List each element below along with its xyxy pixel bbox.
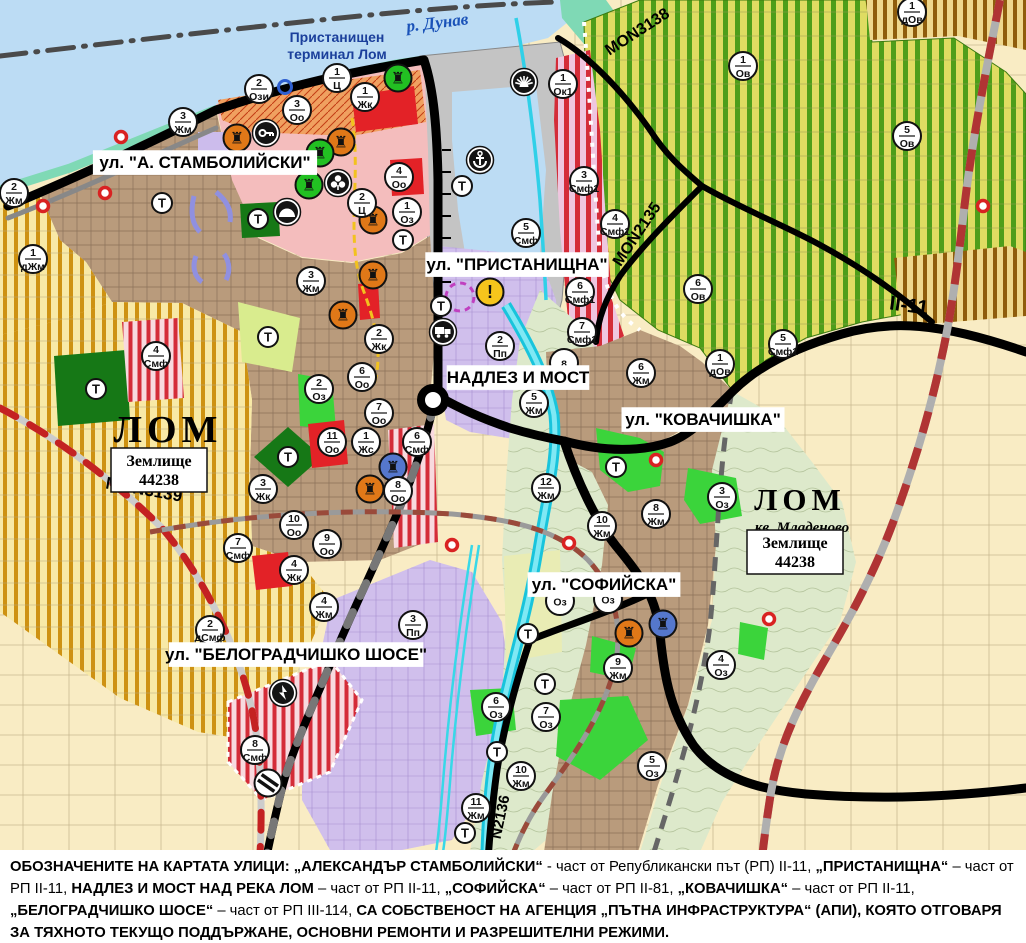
svg-text:Жк: Жк xyxy=(255,491,271,503)
svg-text:7: 7 xyxy=(376,401,382,413)
zone-marker: 1дОв xyxy=(706,350,734,378)
svg-text:♜: ♜ xyxy=(622,624,636,643)
svg-text:Т: Т xyxy=(158,196,166,211)
zone-marker: 6Оз xyxy=(482,693,510,721)
mountain-icon xyxy=(274,199,301,226)
zone-marker: 9Жм xyxy=(604,654,632,682)
svg-text:Оо: Оо xyxy=(372,415,387,427)
street-label: ул. "БЕЛОГРАДЧИШКО ШОСЕ" xyxy=(165,642,427,667)
zone-marker: 4Оз xyxy=(707,651,735,679)
svg-text:2: 2 xyxy=(316,377,322,389)
svg-text:♜: ♜ xyxy=(386,458,400,477)
red-dot-marker xyxy=(564,538,575,549)
svg-text:Землище: Землище xyxy=(762,535,827,552)
street-label: НАДЛЕЗ И МОСТ xyxy=(447,365,590,390)
roundabout xyxy=(421,388,445,412)
zone-marker: 9Оо xyxy=(313,530,341,558)
green-zone-oz-7 xyxy=(738,622,768,660)
zone-marker: 2Ц xyxy=(348,189,376,217)
culture-icon: ♜ xyxy=(296,172,323,199)
svg-text:10: 10 xyxy=(288,513,300,525)
svg-text:Жм: Жм xyxy=(511,778,529,790)
svg-text:1: 1 xyxy=(404,200,410,212)
svg-text:Пп: Пп xyxy=(406,627,420,639)
culture-icon: ♜ xyxy=(330,302,357,329)
svg-text:Жм: Жм xyxy=(592,528,610,540)
culture-icon: ♜ xyxy=(650,611,677,638)
svg-text:5: 5 xyxy=(780,332,786,344)
railcross-icon xyxy=(255,770,282,797)
zone-marker: 2Жм xyxy=(0,179,28,207)
footer-street-name: НАДЛЕЗ И МОСТ НАД РЕКА ЛОМ xyxy=(71,881,314,897)
svg-text:1: 1 xyxy=(334,66,340,78)
zone-marker: 1Жс xyxy=(352,428,380,456)
svg-text:1: 1 xyxy=(363,430,369,442)
culture-icon: ♜ xyxy=(224,125,251,152)
svg-text:6: 6 xyxy=(577,280,583,292)
zone-marker: 7Смф xyxy=(224,534,252,562)
zone-marker: 5Смф1 xyxy=(768,330,798,358)
svg-text:ЛОМ: ЛОМ xyxy=(114,409,223,451)
transformer-marker: Т xyxy=(455,823,475,843)
svg-text:♜: ♜ xyxy=(391,69,405,88)
zone-marker: 10Жм xyxy=(507,762,535,790)
zoning-map-screenshot: ♜♜♜♜♜♜♜♜♜♜♜♜! 2Ози1Ц3Оо1Жк3Жм2Жм1дЖм4Оо2… xyxy=(0,0,1026,943)
zone-marker: 3Пп xyxy=(399,611,427,639)
zone-marker: 2Пп xyxy=(486,332,514,360)
svg-text:дОв: дОв xyxy=(709,366,731,378)
svg-text:9: 9 xyxy=(615,656,621,668)
footer-street-name: „СОФИЙСКА“ xyxy=(445,881,546,897)
svg-text:1: 1 xyxy=(909,0,915,12)
svg-text:6: 6 xyxy=(414,430,420,442)
svg-text:♜: ♜ xyxy=(336,306,350,325)
svg-text:4: 4 xyxy=(153,344,159,356)
svg-text:3: 3 xyxy=(410,613,416,625)
svg-text:ул. "ПРИСТАНИЩНА": ул. "ПРИСТАНИЩНА" xyxy=(426,255,607,274)
footer-text: – част от РП III-114, xyxy=(213,903,356,919)
zone-marker: 7Оз xyxy=(532,703,560,731)
sun-icon xyxy=(511,69,538,96)
culture-icon: ♜ xyxy=(360,262,387,289)
zone-marker: 1Жк xyxy=(351,83,379,111)
svg-text:Смф: Смф xyxy=(405,444,429,456)
zone-marker: 5Жм xyxy=(520,389,548,417)
svg-text:5: 5 xyxy=(904,124,910,136)
svg-text:1: 1 xyxy=(717,352,723,364)
zone-marker: 1Оз xyxy=(393,198,421,226)
culture-icon: ♜ xyxy=(385,65,412,92)
svg-text:Оо: Оо xyxy=(287,527,302,539)
svg-text:♜: ♜ xyxy=(363,480,377,499)
zone-marker: 1дОв xyxy=(898,0,926,26)
svg-text:4: 4 xyxy=(396,165,402,177)
svg-text:Смф: Смф xyxy=(226,550,250,562)
svg-text:ул. "А. СТАМБОЛИЙСКИ": ул. "А. СТАМБОЛИЙСКИ" xyxy=(99,153,310,172)
svg-text:Оо: Оо xyxy=(392,179,407,191)
svg-text:Оо: Оо xyxy=(320,546,335,558)
svg-text:5: 5 xyxy=(523,221,529,233)
svg-text:Смф1: Смф1 xyxy=(567,334,597,346)
svg-text:Пристанищен: Пристанищен xyxy=(290,29,385,45)
truck-icon xyxy=(430,319,457,346)
zone-marker: 10Оо xyxy=(280,511,308,539)
svg-text:терминал Лом: терминал Лом xyxy=(287,46,387,62)
zone-marker: 2дСмф xyxy=(194,616,225,644)
svg-text:Ов: Ов xyxy=(736,68,751,80)
zone-marker: 10Жм xyxy=(588,512,616,540)
svg-text:3: 3 xyxy=(260,477,266,489)
svg-text:6: 6 xyxy=(493,695,499,707)
zone-marker: 7Оо xyxy=(365,399,393,427)
street-label: ул. "СОФИЙСКА" xyxy=(528,572,681,597)
svg-text:7: 7 xyxy=(235,536,241,548)
zone-marker: 2Оз xyxy=(305,375,333,403)
zone-marker: 6Ов xyxy=(684,275,712,303)
svg-text:ЛОМ: ЛОМ xyxy=(754,482,845,517)
zone-marker: 1Ок1 xyxy=(549,70,577,98)
svg-text:12: 12 xyxy=(540,476,552,488)
svg-text:6: 6 xyxy=(695,277,701,289)
zone-marker: 5Оз xyxy=(638,752,666,780)
place-label: терминал Лом xyxy=(287,46,387,62)
svg-text:Ов: Ов xyxy=(900,138,915,150)
svg-text:Ов: Ов xyxy=(691,291,706,303)
svg-text:♜: ♜ xyxy=(302,176,316,195)
svg-text:10: 10 xyxy=(596,514,608,526)
red-dot-marker xyxy=(447,540,458,551)
svg-text:Т: Т xyxy=(493,745,501,760)
svg-text:1: 1 xyxy=(30,247,36,259)
svg-text:ул. "КОВАЧИШКА": ул. "КОВАЧИШКА" xyxy=(625,410,781,429)
zone-marker: 11Оо xyxy=(318,428,346,456)
svg-text:7: 7 xyxy=(543,705,549,717)
svg-text:Жм: Жм xyxy=(524,405,542,417)
svg-text:2: 2 xyxy=(11,181,17,193)
transformer-marker: Т xyxy=(258,327,278,347)
zone-marker: 2Ози xyxy=(245,75,273,103)
place-label: ЛОМ xyxy=(114,409,223,451)
svg-text:1: 1 xyxy=(560,72,566,84)
transformer-marker: Т xyxy=(452,176,472,196)
svg-text:1: 1 xyxy=(362,85,368,97)
anchor-icon xyxy=(467,147,494,174)
zone-marker: 4Оо xyxy=(385,163,413,191)
svg-text:Жм: Жм xyxy=(314,609,332,621)
svg-text:Землище: Землище xyxy=(126,453,191,470)
svg-text:Оз: Оз xyxy=(312,391,325,403)
clover-icon xyxy=(325,170,352,197)
exclaim-icon: ! xyxy=(477,279,504,306)
key-icon xyxy=(253,120,280,147)
svg-text:8: 8 xyxy=(395,479,401,491)
svg-text:♜: ♜ xyxy=(334,133,348,152)
svg-text:3: 3 xyxy=(719,485,725,497)
svg-text:Ц: Ц xyxy=(333,80,341,92)
footer-text: – част от РП II-81, xyxy=(546,881,678,897)
zone-marker: 3Жм xyxy=(297,267,325,295)
svg-text:Оз: Оз xyxy=(645,768,658,780)
svg-text:Оз: Оз xyxy=(400,214,413,226)
zone-marker: 7Смф1 xyxy=(567,318,597,346)
svg-text:Оо: Оо xyxy=(290,112,305,124)
svg-text:♜: ♜ xyxy=(366,266,380,285)
svg-text:3: 3 xyxy=(581,169,587,181)
red-dot-marker xyxy=(651,455,662,466)
svg-text:Т: Т xyxy=(461,826,469,841)
transformer-marker: Т xyxy=(518,624,538,644)
svg-text:Т: Т xyxy=(437,299,445,314)
svg-text:Оз: Оз xyxy=(715,499,728,511)
svg-text:Ц: Ц xyxy=(358,205,366,217)
svg-text:дСмф: дСмф xyxy=(194,632,225,644)
place-label: Пристанищен xyxy=(290,29,385,45)
red-dot-marker xyxy=(764,614,775,625)
svg-text:Т: Т xyxy=(254,212,262,227)
legend-footer-text: ОБОЗНАЧЕНИТЕ НА КАРТАТА УЛИЦИ: „АЛЕКСАНД… xyxy=(0,850,1026,943)
svg-text:6: 6 xyxy=(359,365,365,377)
svg-text:Жм: Жм xyxy=(4,195,22,207)
svg-text:11: 11 xyxy=(326,430,337,442)
svg-text:10: 10 xyxy=(515,764,527,776)
transformer-marker: Т xyxy=(606,457,626,477)
svg-text:Т: Т xyxy=(264,330,272,345)
transformer-marker: Т xyxy=(487,742,507,762)
svg-text:дОв: дОв xyxy=(901,14,923,26)
zone-marker: 2Жк xyxy=(365,325,393,353)
svg-text:Жм: Жм xyxy=(536,490,554,502)
svg-text:Жм: Жм xyxy=(301,283,319,295)
svg-text:2: 2 xyxy=(207,618,213,630)
svg-text:2: 2 xyxy=(497,334,503,346)
culture-icon: ♜ xyxy=(616,620,643,647)
svg-text:Жм: Жм xyxy=(608,670,626,682)
zone-marker: 3Смф1 xyxy=(569,167,599,195)
svg-text:9: 9 xyxy=(324,532,330,544)
transformer-marker: Т xyxy=(86,379,106,399)
zone-marker: 1дЖм xyxy=(19,245,47,273)
culture-icon: ♜ xyxy=(380,454,407,481)
svg-text:НАДЛЕЗ И МОСТ: НАДЛЕЗ И МОСТ xyxy=(447,368,590,387)
transformer-marker: Т xyxy=(393,230,413,250)
svg-text:44238: 44238 xyxy=(139,472,179,489)
svg-text:4: 4 xyxy=(612,212,618,224)
svg-text:!: ! xyxy=(487,282,493,302)
svg-text:11: 11 xyxy=(470,796,481,808)
zone-marker: 8Смф xyxy=(241,736,269,764)
svg-text:Жк: Жк xyxy=(371,341,387,353)
svg-text:8: 8 xyxy=(653,502,659,514)
svg-text:Оз: Оз xyxy=(539,719,552,731)
footer-street-name: „КОВАЧИШКА“ xyxy=(678,881,788,897)
svg-text:Жм: Жм xyxy=(466,810,484,822)
transformer-marker: Т xyxy=(278,447,298,467)
svg-text:44238: 44238 xyxy=(775,554,815,571)
transformer-marker: Т xyxy=(248,209,268,229)
svg-text:Т: Т xyxy=(612,460,620,475)
zone-marker: 4Жм xyxy=(310,593,338,621)
svg-text:Ози: Ози xyxy=(249,91,269,103)
city-map[interactable]: ♜♜♜♜♜♜♜♜♜♜♜♜! 2Ози1Ц3Оо1Жк3Жм2Жм1дЖм4Оо2… xyxy=(0,0,1026,943)
footer-street-name: ОБОЗНАЧЕНИТЕ НА КАРТАТА УЛИЦИ: „АЛЕКСАНД… xyxy=(10,859,543,875)
svg-text:Оо: Оо xyxy=(355,379,370,391)
svg-text:Т: Т xyxy=(541,677,549,692)
lightning-icon xyxy=(270,680,297,707)
svg-text:Ок1: Ок1 xyxy=(553,86,572,98)
svg-text:Т: Т xyxy=(92,382,100,397)
svg-text:дЖм: дЖм xyxy=(21,261,45,273)
svg-text:4: 4 xyxy=(718,653,724,665)
svg-text:6: 6 xyxy=(638,361,644,373)
svg-text:3: 3 xyxy=(294,98,300,110)
svg-text:5: 5 xyxy=(531,391,537,403)
svg-text:4: 4 xyxy=(321,595,327,607)
zone-marker: 6Смф1 xyxy=(565,278,595,306)
zone-marker: 1Ц xyxy=(323,64,351,92)
zone-marker: 3Оо xyxy=(283,96,311,124)
zone-marker: 3Жк xyxy=(249,475,277,503)
svg-text:Т: Т xyxy=(458,179,466,194)
zone-marker: 4Жк xyxy=(280,556,308,584)
land-unit-box: Землище44238 xyxy=(111,448,207,492)
red-dot-marker xyxy=(978,201,989,212)
svg-text:2: 2 xyxy=(376,327,382,339)
red-dot-marker xyxy=(116,132,127,143)
svg-text:Пп: Пп xyxy=(493,348,507,360)
svg-text:♜: ♜ xyxy=(230,129,244,148)
zone-marker: 3Оз xyxy=(708,483,736,511)
svg-text:ул. "СОФИЙСКА": ул. "СОФИЙСКА" xyxy=(532,575,677,594)
svg-text:7: 7 xyxy=(579,320,585,332)
svg-text:3: 3 xyxy=(180,110,186,122)
place-label: ЛОМ xyxy=(754,482,845,517)
footer-text: – част от РП II-11, xyxy=(314,881,445,897)
footer-street-name: „ПРИСТАНИЩНА“ xyxy=(816,859,949,875)
transformer-marker: Т xyxy=(152,193,172,213)
svg-text:Жм: Жм xyxy=(173,124,191,136)
svg-text:Т: Т xyxy=(399,233,407,248)
zone-marker: 6Жм xyxy=(627,359,655,387)
svg-text:ул. "БЕЛОГРАДЧИШКО ШОСЕ": ул. "БЕЛОГРАДЧИШКО ШОСЕ" xyxy=(165,645,427,664)
culture-icon: ♜ xyxy=(357,476,384,503)
svg-text:3: 3 xyxy=(308,269,314,281)
land-unit-box: Землище44238 xyxy=(747,530,843,574)
zone-marker: 8Жм xyxy=(642,500,670,528)
zone-marker: 5Ов xyxy=(893,122,921,150)
svg-text:Смф1: Смф1 xyxy=(768,346,798,358)
svg-text:1: 1 xyxy=(740,54,746,66)
svg-text:Жс: Жс xyxy=(357,444,373,456)
footer-text: - част от Републикански път (РП) II-11, xyxy=(543,859,816,875)
zone-marker: 4Смф1 xyxy=(600,210,630,238)
street-label: ул. "ПРИСТАНИЩНА" xyxy=(425,252,608,277)
zone-marker: 3Жм xyxy=(169,108,197,136)
svg-text:♜: ♜ xyxy=(656,615,670,634)
svg-text:Смф: Смф xyxy=(514,235,538,247)
red-dot-marker xyxy=(100,188,111,199)
svg-text:Оз: Оз xyxy=(714,667,727,679)
zone-marker: 11Жм xyxy=(462,794,490,822)
svg-text:4: 4 xyxy=(291,558,297,570)
svg-text:Смф1: Смф1 xyxy=(565,294,595,306)
zone-marker: 6Оо xyxy=(348,363,376,391)
svg-text:Смф: Смф xyxy=(243,752,267,764)
svg-text:2: 2 xyxy=(256,77,262,89)
svg-text:Смф: Смф xyxy=(144,358,168,370)
svg-text:2: 2 xyxy=(359,191,365,203)
svg-text:Т: Т xyxy=(524,627,532,642)
zone-marker: 5Смф xyxy=(512,219,540,247)
svg-text:Жк: Жк xyxy=(286,572,302,584)
svg-text:Оо: Оо xyxy=(325,444,340,456)
svg-text:Т: Т xyxy=(284,450,292,465)
footer-street-name: „БЕЛОГРАДЧИШКО ШОСЕ“ xyxy=(10,903,213,919)
svg-text:8: 8 xyxy=(252,738,258,750)
svg-text:Оо: Оо xyxy=(391,493,406,505)
street-label: ул. "А. СТАМБОЛИЙСКИ" xyxy=(93,150,317,175)
svg-text:Жм: Жм xyxy=(646,516,664,528)
zone-marker: 4Смф xyxy=(142,342,170,370)
transformer-marker: Т xyxy=(431,296,451,316)
zone-marker: 12Жм xyxy=(532,474,560,502)
zone-marker: 6Смф xyxy=(403,428,431,456)
footer-text: – част от РП II-11, xyxy=(788,881,915,897)
transformer-marker: Т xyxy=(535,674,555,694)
svg-text:5: 5 xyxy=(649,754,655,766)
zone-marker: 1Ов xyxy=(729,52,757,80)
svg-text:Смф1: Смф1 xyxy=(569,183,599,195)
svg-text:Оз: Оз xyxy=(489,709,502,721)
red-dot-marker xyxy=(38,201,49,212)
svg-text:Жк: Жк xyxy=(357,99,373,111)
zone-marker: 8Оо xyxy=(384,477,412,505)
svg-text:Оз: Оз xyxy=(553,597,566,609)
svg-text:Жм: Жм xyxy=(631,375,649,387)
street-label: ул. "КОВАЧИШКА" xyxy=(622,407,785,432)
